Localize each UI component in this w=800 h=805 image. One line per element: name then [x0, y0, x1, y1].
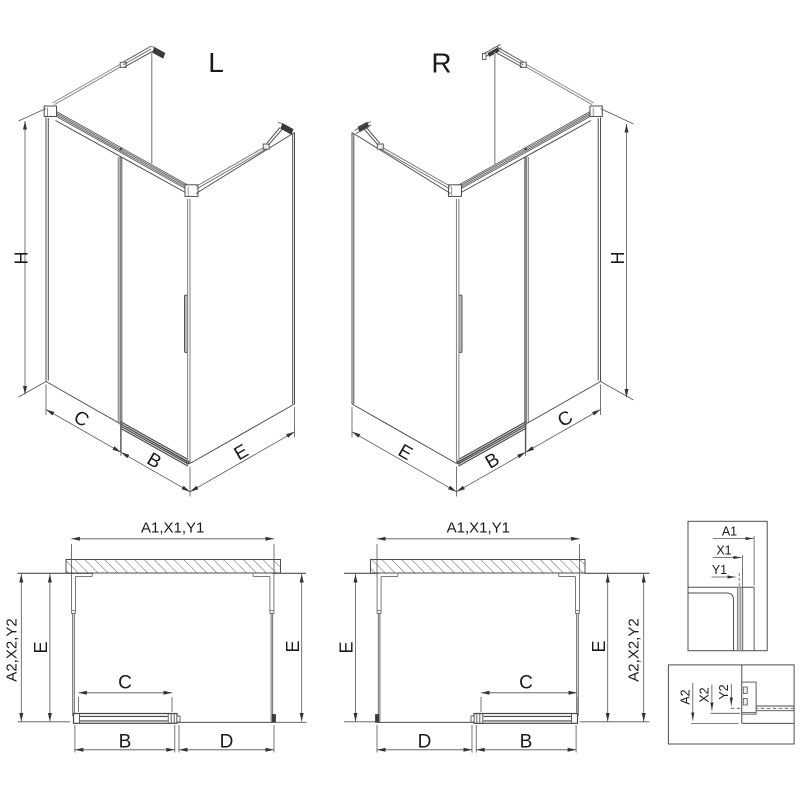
svg-text:X1: X1	[716, 544, 731, 558]
svg-text:D: D	[220, 731, 234, 752]
svg-text:E: E	[283, 640, 303, 652]
svg-text:X2: X2	[698, 687, 712, 702]
svg-text:B: B	[119, 731, 132, 752]
svg-text:B: B	[520, 731, 533, 752]
svg-text:E: E	[337, 641, 357, 653]
svg-text:Y2: Y2	[717, 684, 731, 699]
svg-text:L: L	[208, 47, 224, 78]
svg-text:H: H	[608, 252, 628, 265]
svg-text:A1: A1	[722, 525, 737, 539]
svg-text:E: E	[31, 641, 51, 653]
svg-text:A2,X2,Y2: A2,X2,Y2	[626, 618, 643, 681]
svg-text:C: C	[519, 673, 533, 694]
svg-text:A2: A2	[679, 689, 693, 704]
svg-text:A1,X1,Y1: A1,X1,Y1	[447, 520, 510, 537]
svg-text:R: R	[431, 48, 451, 79]
svg-text:C: C	[118, 673, 132, 694]
svg-text:A2,X2,Y2: A2,X2,Y2	[3, 618, 20, 681]
svg-text:H: H	[12, 252, 32, 265]
svg-text:Y1: Y1	[712, 563, 727, 577]
svg-text:A1,X1,Y1: A1,X1,Y1	[141, 520, 204, 537]
svg-text:D: D	[418, 731, 432, 752]
svg-text:E: E	[589, 640, 609, 652]
